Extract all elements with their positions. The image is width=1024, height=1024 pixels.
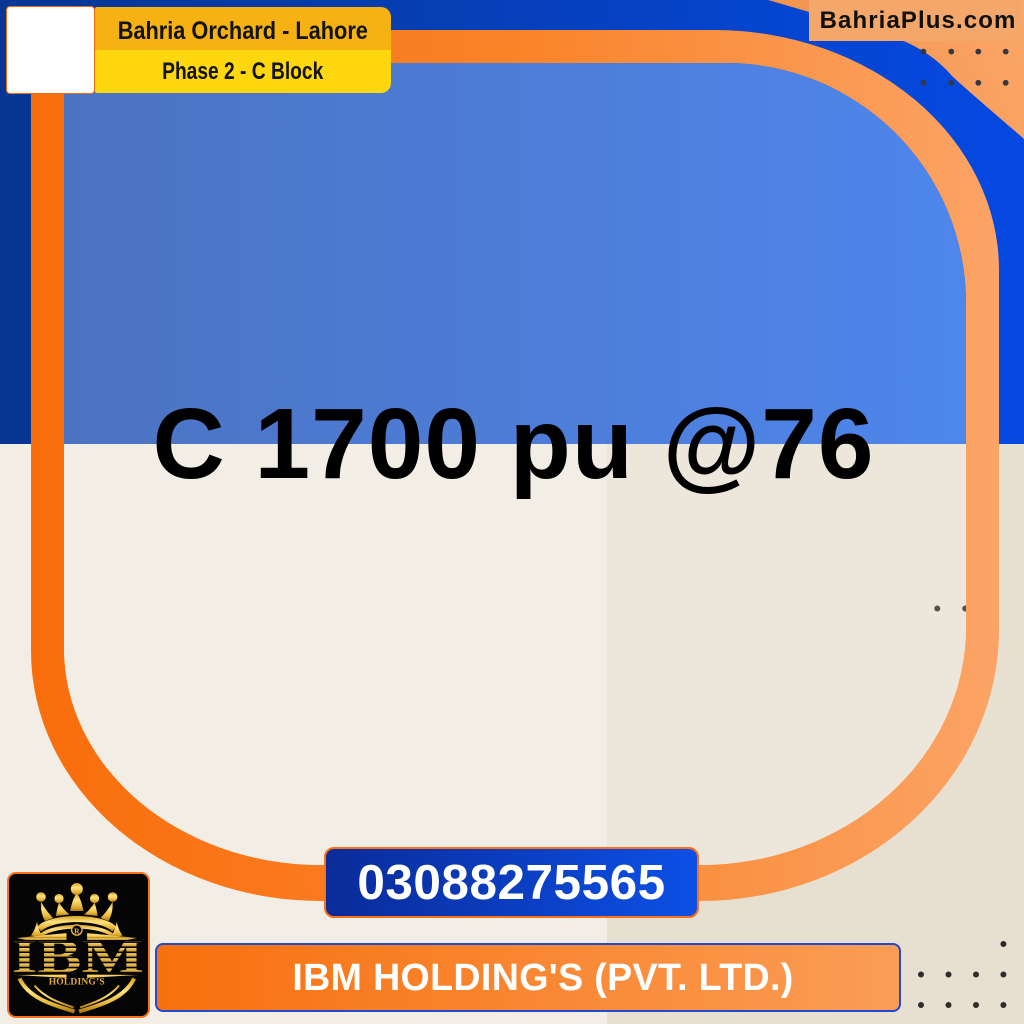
svg-text:HOLDING’S: HOLDING’S bbox=[49, 978, 105, 988]
